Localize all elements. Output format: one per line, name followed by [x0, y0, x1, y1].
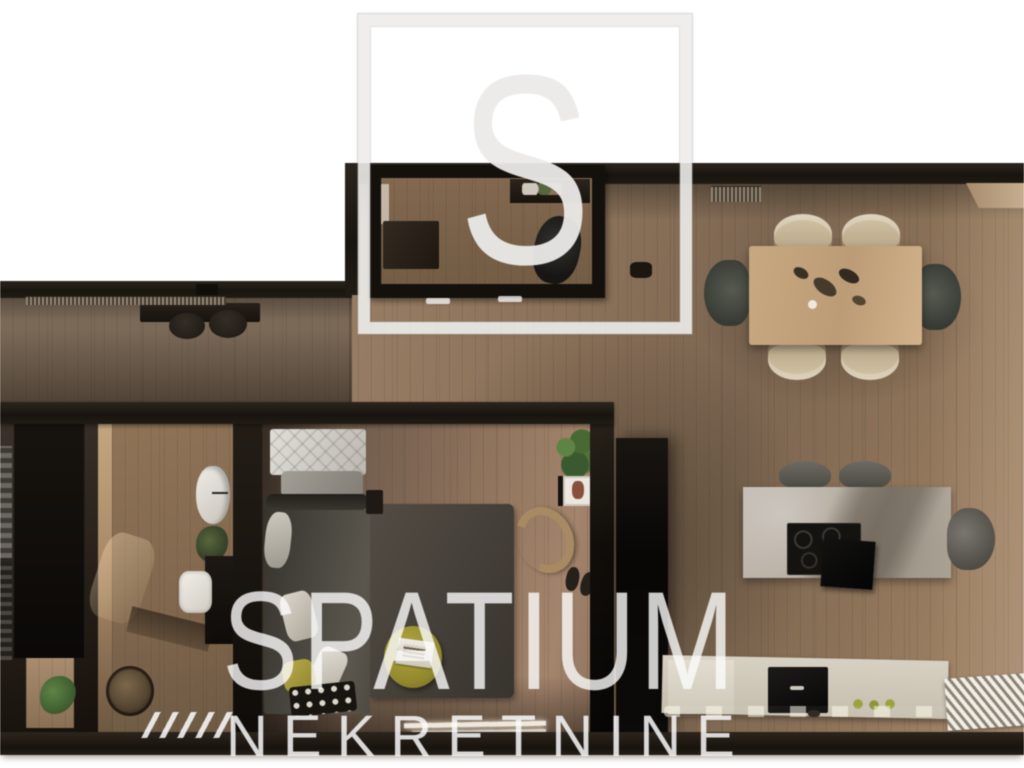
- dining-table: [749, 246, 922, 345]
- door-mat: [141, 712, 235, 738]
- nightstand: [366, 490, 383, 514]
- toilet: [196, 466, 230, 524]
- table-decor: [808, 300, 817, 309]
- wall-vent: [196, 284, 218, 295]
- desk-chair: [209, 310, 247, 338]
- headboard: [270, 429, 366, 475]
- radiator: [711, 186, 761, 202]
- wardrobe: [14, 424, 85, 658]
- bar-stool: [947, 508, 995, 570]
- rug-roll: [0, 562, 12, 660]
- dining-chair: [768, 340, 826, 380]
- floorplan-render: S SPATIUM NEKRETNINE: [0, 0, 1024, 768]
- desk-chair: [169, 313, 205, 339]
- toilet-seat-line: [212, 492, 228, 494]
- bed-blanket-fold: [266, 494, 368, 510]
- laundry-basket-rim: [106, 666, 154, 716]
- bathroom-sink: [179, 571, 212, 613]
- watermark-subtitle: NEKRETNINE: [226, 703, 926, 767]
- bar-stool: [839, 461, 891, 489]
- wall-art-print: [572, 481, 584, 499]
- rug-roll: [0, 446, 12, 558]
- radiator: [26, 296, 226, 305]
- dining-chair: [704, 260, 750, 326]
- dish-rack: [944, 673, 1024, 730]
- serving-tray: [820, 538, 875, 590]
- partition-wall: [0, 402, 614, 424]
- watermark-letter: S: [401, 6, 648, 336]
- watermark-brand: SPATIUM: [222, 560, 796, 710]
- bar-stool: [779, 461, 831, 489]
- dining-chair: [841, 340, 899, 380]
